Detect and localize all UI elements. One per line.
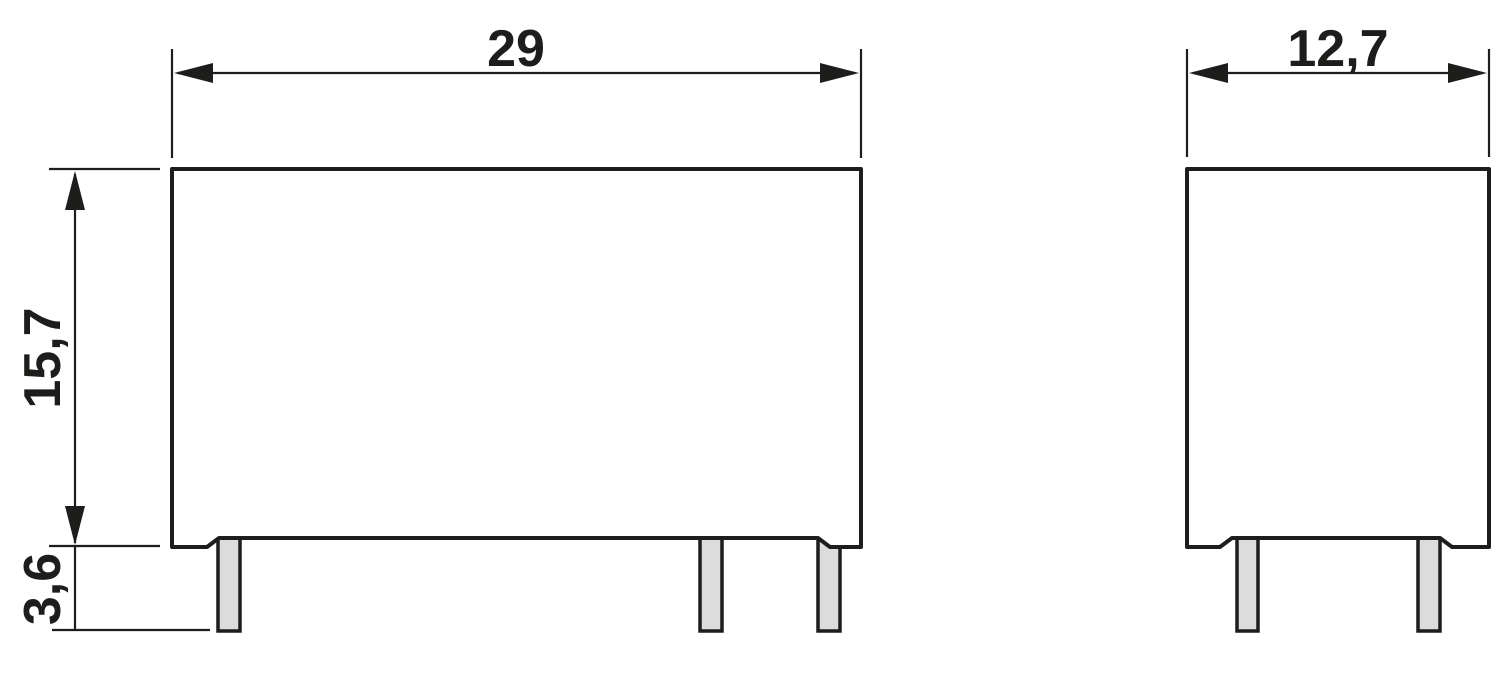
front-width-label: 29 (487, 20, 545, 78)
arrow-down-icon (65, 506, 85, 545)
front-view: 29 15,7 3,6 (14, 20, 861, 631)
body-height-dimension: 15,7 (14, 169, 160, 546)
side-view-pin-2 (1418, 538, 1440, 631)
side-width-dimension: 12,7 (1187, 20, 1489, 157)
pin-length-label: 3,6 (14, 553, 72, 625)
front-width-dimension: 29 (172, 20, 861, 158)
side-view: 12,7 (1187, 20, 1489, 631)
arrow-right-icon (820, 63, 859, 83)
pin-length-dimension: 3,6 (14, 546, 210, 630)
body-height-label: 15,7 (14, 307, 72, 408)
arrow-left-icon (1189, 63, 1228, 83)
side-view-body-outline (1187, 169, 1489, 547)
front-view-pin-2 (700, 538, 722, 631)
front-view-pin-1 (218, 538, 240, 631)
drawing-canvas: 29 15,7 3,6 (0, 0, 1500, 676)
side-width-label: 12,7 (1287, 20, 1388, 78)
arrow-right-icon (1448, 63, 1487, 83)
arrow-up-icon (65, 171, 85, 210)
front-view-body-outline (172, 169, 861, 547)
arrow-left-icon (174, 63, 213, 83)
front-view-pin-3 (818, 538, 840, 631)
side-view-pin-1 (1237, 538, 1258, 631)
dimension-drawing: 29 15,7 3,6 (0, 0, 1500, 676)
